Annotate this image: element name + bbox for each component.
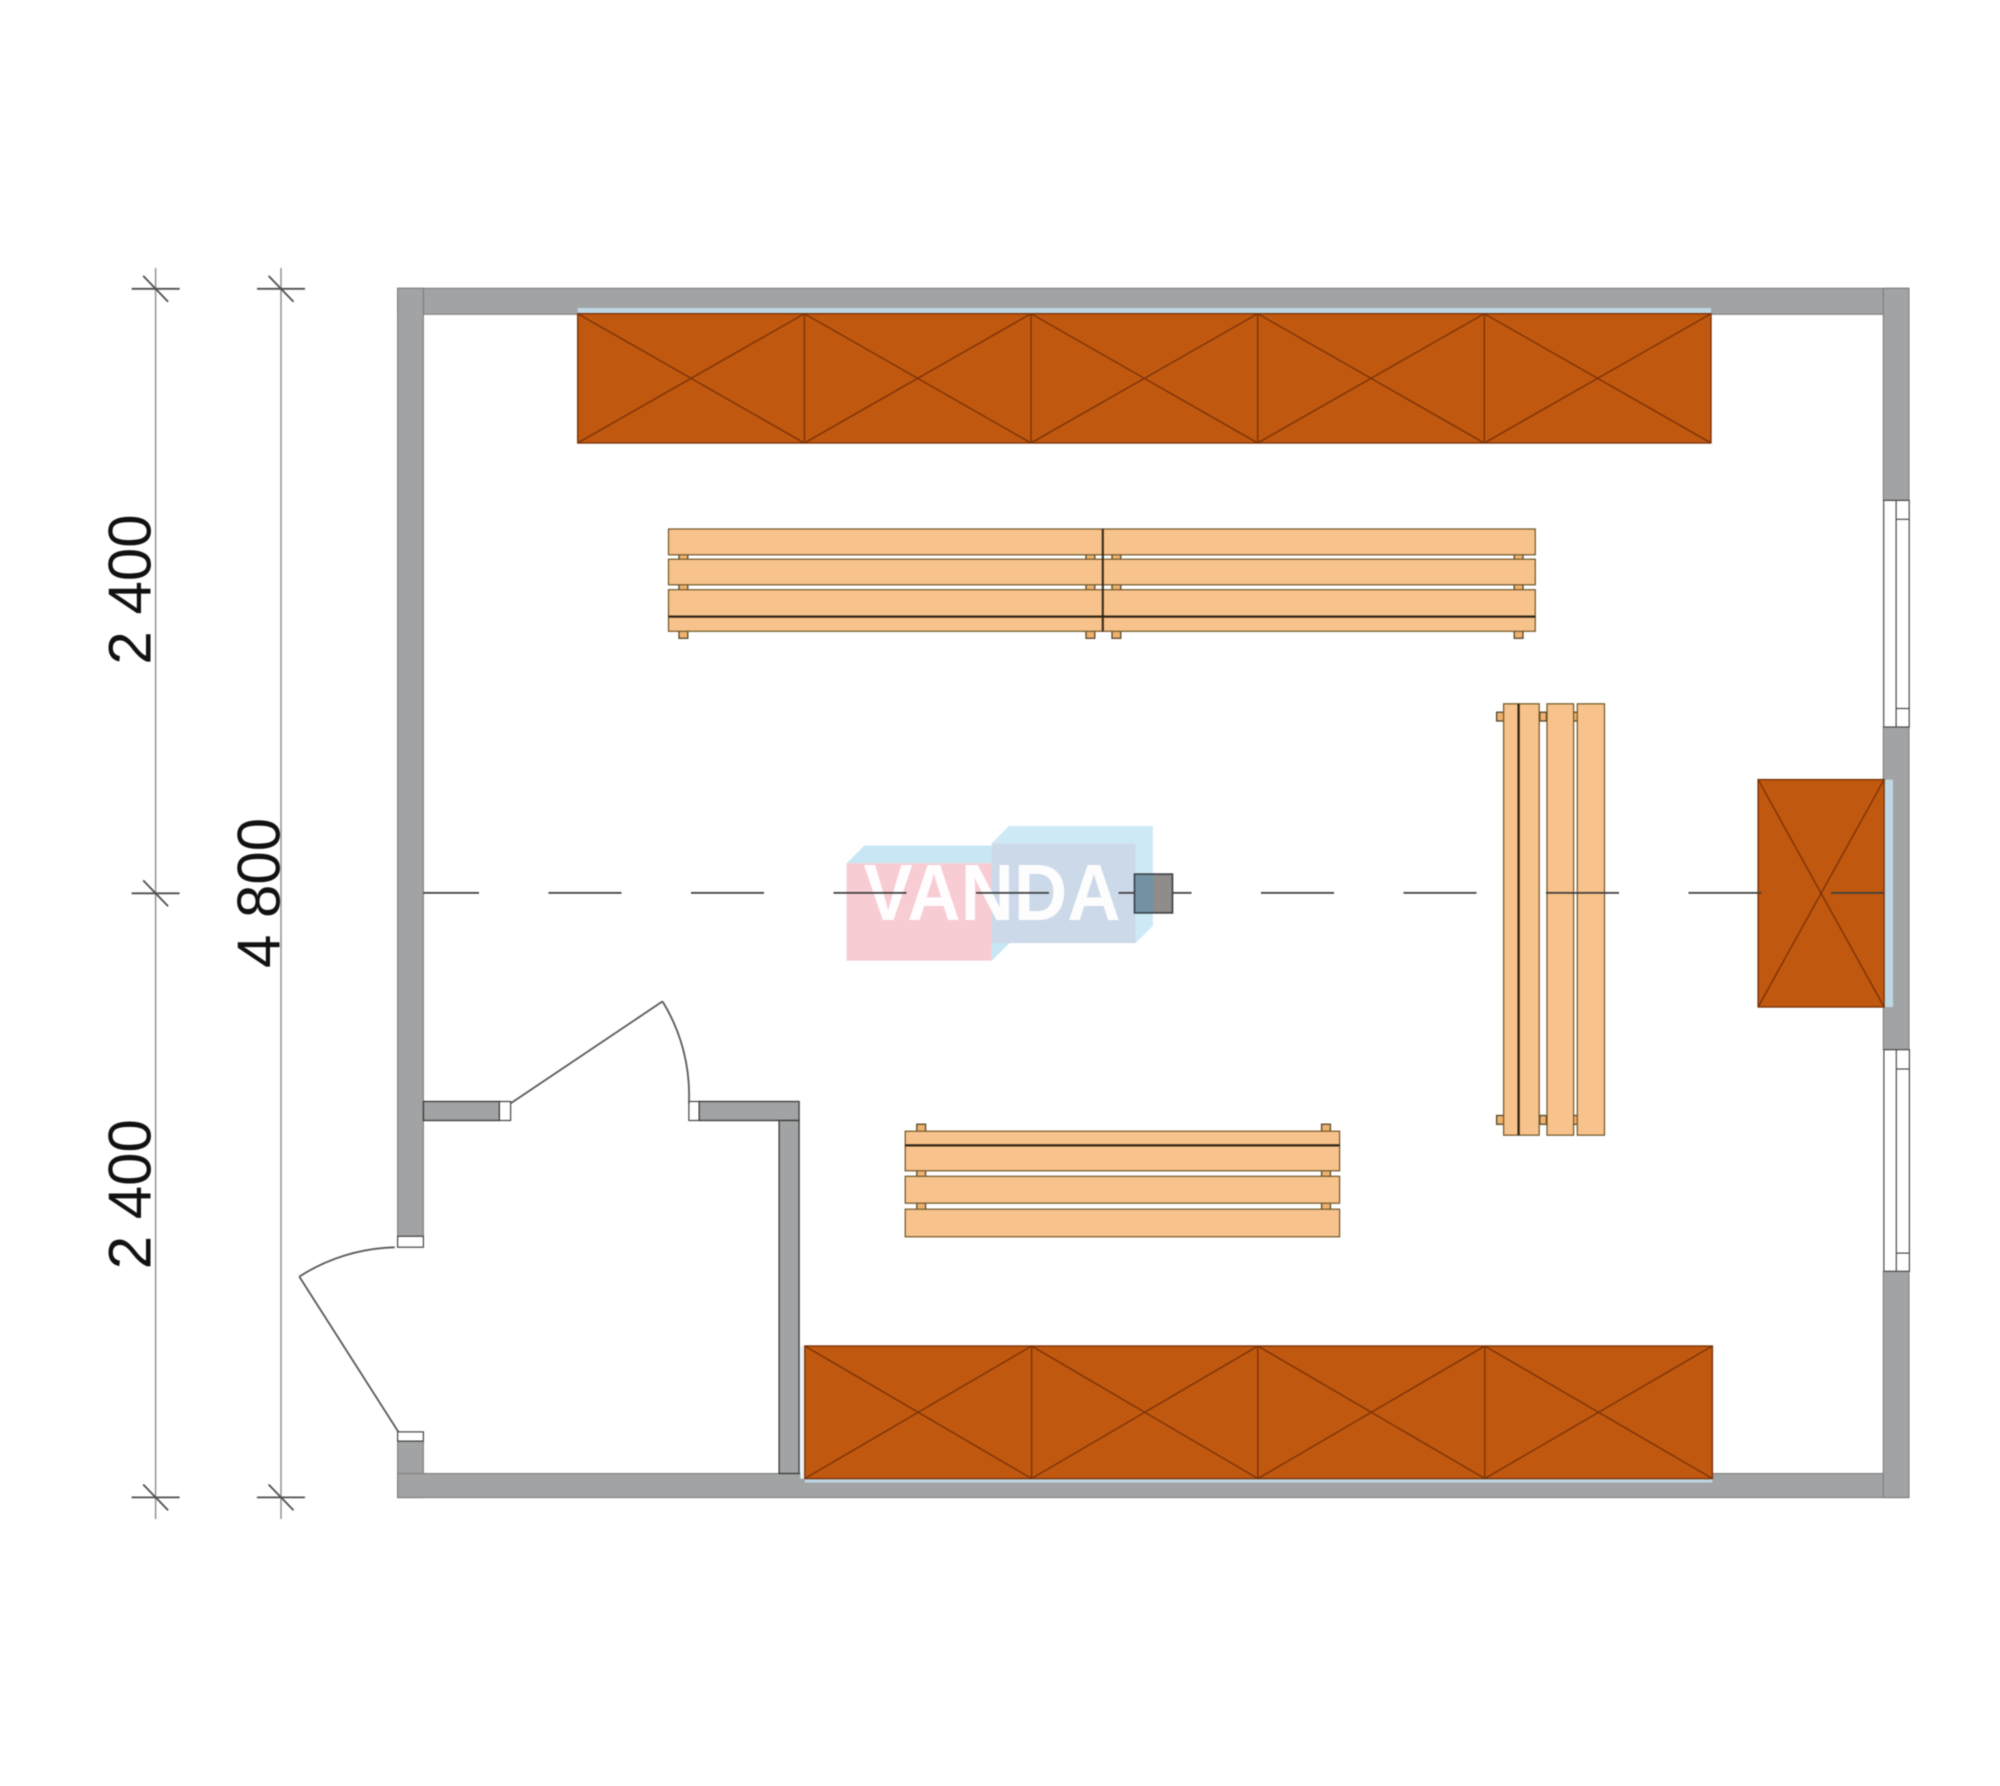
svg-text:4 800: 4 800: [226, 818, 293, 968]
svg-text:2 400: 2 400: [97, 514, 164, 664]
svg-text:2 400: 2 400: [97, 1119, 164, 1269]
